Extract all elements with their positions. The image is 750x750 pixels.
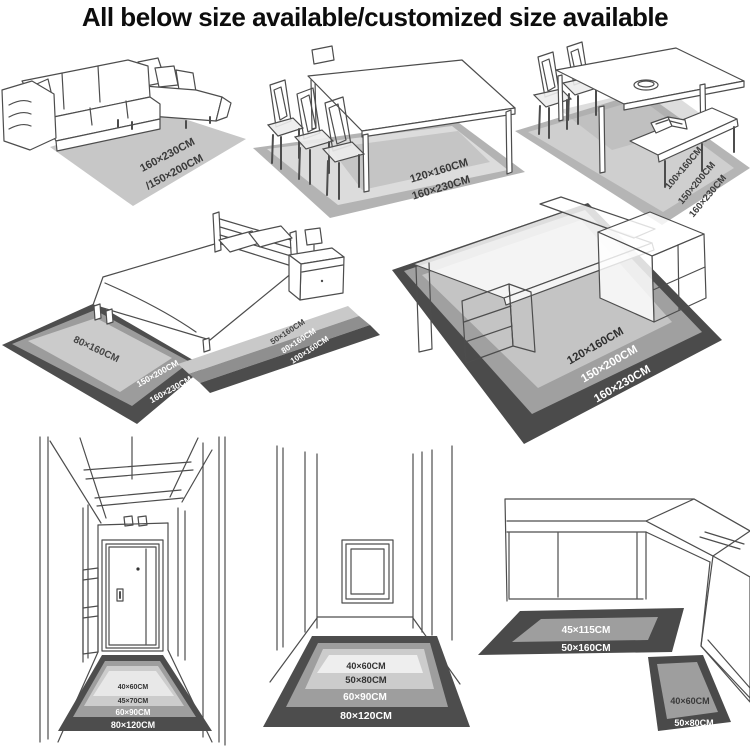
- size-label: 40×60CM: [670, 696, 709, 706]
- size-label: 80×120CM: [111, 720, 155, 730]
- entry-door: [102, 540, 163, 651]
- size-label: 60×90CM: [116, 708, 151, 717]
- scene-bedroom: 80×160CM 150×200CM 160×230CM 50×160CM: [2, 212, 380, 424]
- nightstand: [289, 228, 344, 300]
- size-label: 60×90CM: [343, 692, 387, 703]
- size-label: 45×70CM: [118, 698, 149, 705]
- size-label: 40×60CM: [346, 661, 385, 671]
- scene-office-desk: 120×160CM 150×200CM 160×230CM: [392, 197, 722, 444]
- size-label: 50×160CM: [561, 643, 610, 654]
- size-label: 40×60CM: [118, 684, 149, 691]
- kitchen-counter: [505, 499, 750, 702]
- scene-dining-bench: 100×160CM 150×200CM 160×230CM: [515, 42, 750, 225]
- scene-living-room: 160×230CM /150×200CM: [2, 58, 246, 206]
- bowl: [634, 80, 658, 90]
- scene-dining-table: 120×160CM 160×230CM: [253, 46, 525, 218]
- scene-corridor: 40×60CM 50×80CM 60×90CM 80×120CM: [263, 446, 470, 727]
- size-label: 50×80CM: [674, 718, 713, 728]
- scene-art: 160×230CM /150×200CM: [0, 0, 750, 750]
- scene-entry-hallway: 40×60CM 45×70CM 60×90CM 80×120CM: [40, 437, 225, 745]
- kitchen-runner-rug: 45×115CM 50×160CM: [478, 608, 684, 655]
- scene-kitchen: 45×115CM 50×160CM 40×60CM 50×80CM: [478, 499, 750, 731]
- size-label: 50×80CM: [345, 675, 387, 686]
- size-label: 80×120CM: [340, 710, 392, 722]
- rug-size-infographic: All below size available/customized size…: [0, 0, 750, 750]
- size-label: 45×115CM: [562, 625, 611, 636]
- peephole: [136, 567, 139, 570]
